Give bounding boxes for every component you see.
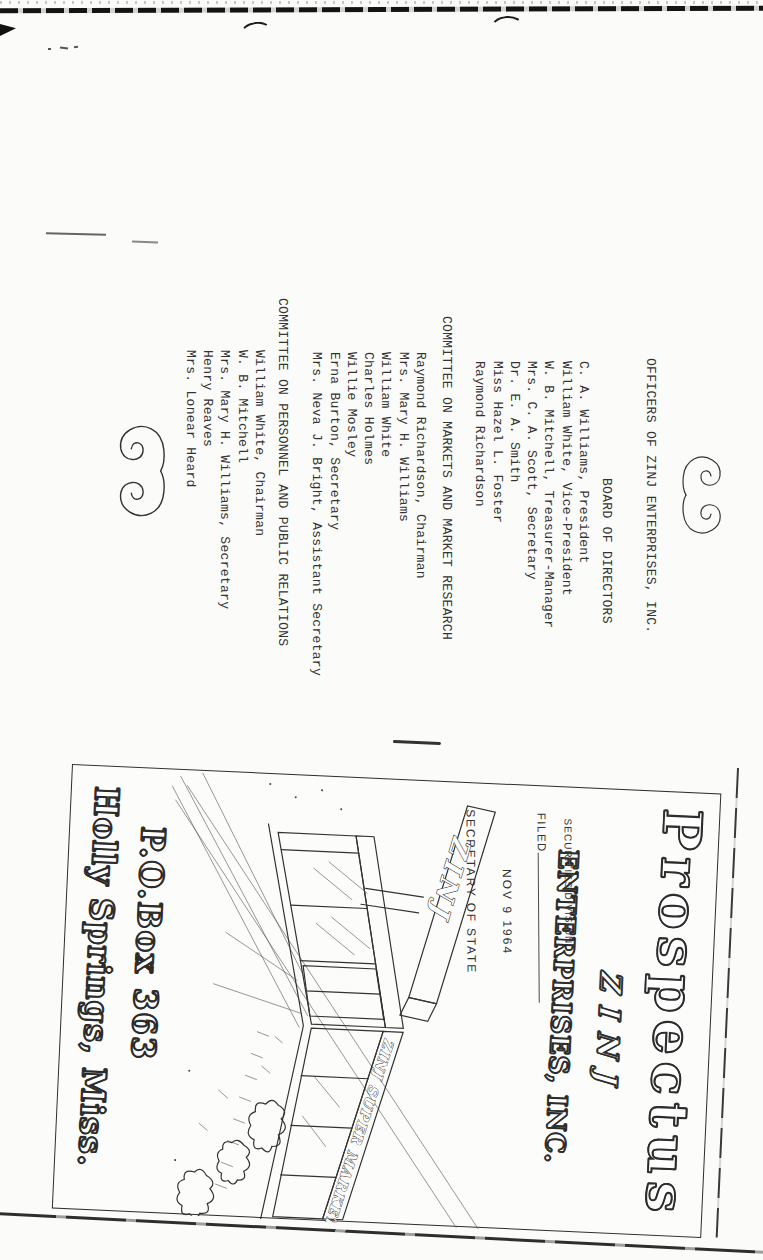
markets-committee-list: Raymond Richardson, Chairman Mrs. Mary H… <box>308 352 429 676</box>
scroll-ornament-icon <box>102 416 170 526</box>
board-members-list: C. A. Williams, President William White,… <box>471 361 592 628</box>
list-item: Mrs. Neva J. Bright, Assistant Secretary <box>308 352 325 676</box>
scan-arc-mark <box>239 20 273 42</box>
scan-arc-mark <box>489 15 525 38</box>
list-item: Erna Burton, Secretary <box>325 352 342 676</box>
scanned-prospectus-page: OFFICERS OF ZINJ ENTERPRISES, INC. BOARD… <box>0 0 763 1260</box>
list-item: Mrs. C. A. Scott, Secretary <box>523 361 540 628</box>
board-heading: BOARD OF DIRECTORS <box>599 478 614 624</box>
list-item: William White, Vice-President <box>557 361 574 628</box>
list-item: Henry Reaves <box>199 350 216 609</box>
stamp-division: SECURITIES DIVISION <box>562 819 574 945</box>
list-item: Charles Holmes <box>360 352 377 676</box>
personnel-committee-list: William White, Chairman W. B. Mitchell M… <box>182 350 268 609</box>
personnel-committee-heading: COMMITTEE ON PERSONNEL AND PUBLIC RELATI… <box>275 298 290 646</box>
list-item: Mrs. Lonear Heard <box>182 350 199 609</box>
list-item: Raymond Richardson <box>471 361 488 628</box>
scroll-ornament-icon <box>678 450 736 540</box>
officers-page: OFFICERS OF ZINJ ENTERPRISES, INC. BOARD… <box>55 228 760 730</box>
pencil-marks <box>48 45 108 53</box>
address-line2: Holly Springs, Miss. <box>71 786 126 1168</box>
list-item: Dr. E. A. Smith <box>506 361 523 628</box>
scan-dotted-edge <box>0 1 763 4</box>
scan-smudge <box>393 740 441 745</box>
list-item: William White, Chairman <box>251 350 268 609</box>
scan-top-edge-line <box>0 6 763 14</box>
stamp-rule <box>538 853 540 1003</box>
cover-page: Prospectus ZINJ ENTERPRISES, INC. SECURI… <box>52 764 722 1238</box>
officers-title: OFFICERS OF ZINJ ENTERPRISES, INC. <box>643 358 658 633</box>
fascia-sign-text: ZINJ SUPER MARKET <box>321 1037 397 1231</box>
list-item: Willie Mosley <box>343 352 360 676</box>
list-item: Mrs. Mary H. Williams <box>394 352 411 676</box>
supermarket-illustration: ZINJ ZINJ SUPER MARKET <box>153 770 533 1231</box>
stamp-status: FILED <box>535 813 547 853</box>
list-item: C. A. Williams, President <box>575 361 592 628</box>
list-item: Mrs. Mary H. Williams, Secretary <box>216 350 233 609</box>
scan-corner-mark <box>0 24 16 36</box>
pylon-sign-text: ZINJ <box>424 833 478 925</box>
list-item: Raymond Richardson, Chairman <box>412 352 429 676</box>
list-item: Miss Hazel L. Foster <box>488 361 505 628</box>
list-item: W. B. Mitchell, Treasurer-Manager <box>540 361 557 628</box>
markets-committee-heading: COMMITTEE ON MARKETS AND MARKET RESEARCH <box>439 316 454 640</box>
list-item: William White <box>377 352 394 676</box>
company-name: ZINJ <box>588 969 628 1097</box>
prospectus-title: Prospectus <box>634 807 714 1221</box>
list-item: W. B. Mitchell <box>233 350 250 609</box>
